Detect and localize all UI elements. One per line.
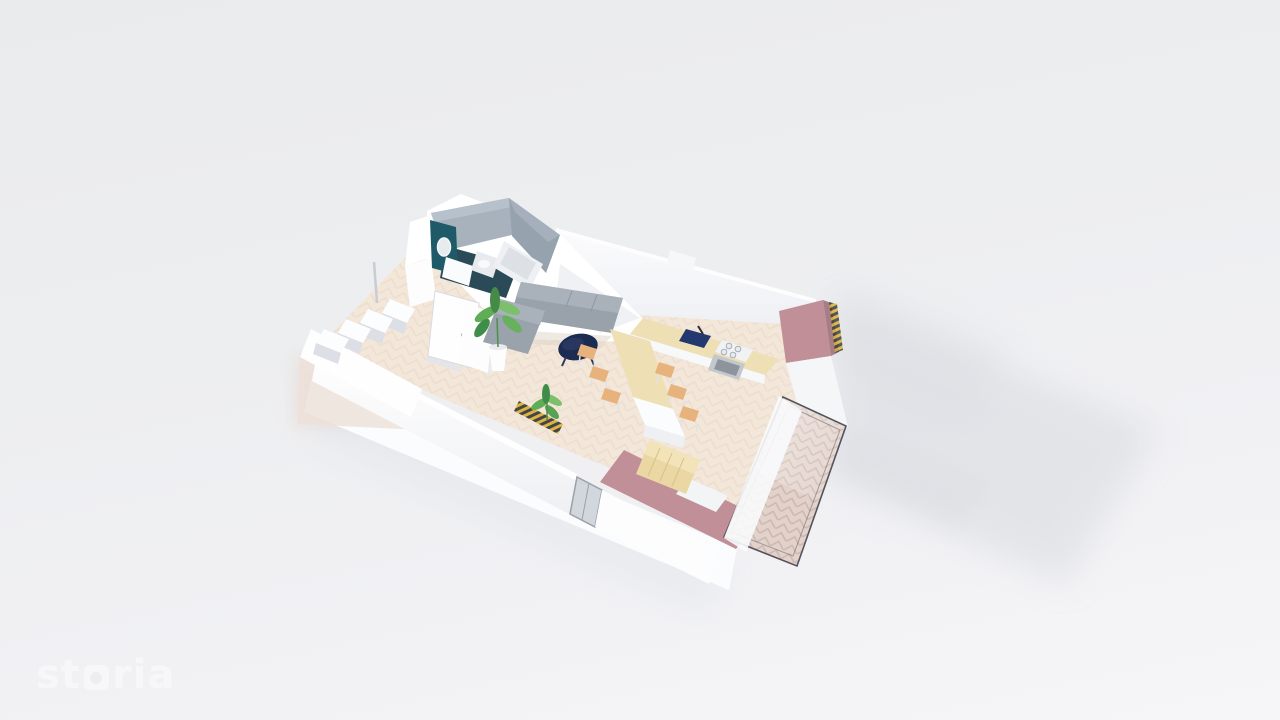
- entry-wall-lower: [405, 258, 436, 307]
- storia-logo: st ria: [36, 650, 175, 694]
- round-mirror-icon: [438, 238, 451, 256]
- floorplan-render: [0, 0, 1280, 720]
- pink-accent-wall-ne: [779, 300, 831, 363]
- logo-square-o-icon: [84, 665, 109, 690]
- toilet-seat: [478, 260, 490, 268]
- real-estate-floorplan-screenshot: { "watermark": { "brand": "storia", "pre…: [0, 0, 1280, 720]
- logo-text-ria: ria: [112, 656, 175, 694]
- plant-pot: [489, 347, 507, 371]
- logo-text-st: st: [36, 656, 81, 694]
